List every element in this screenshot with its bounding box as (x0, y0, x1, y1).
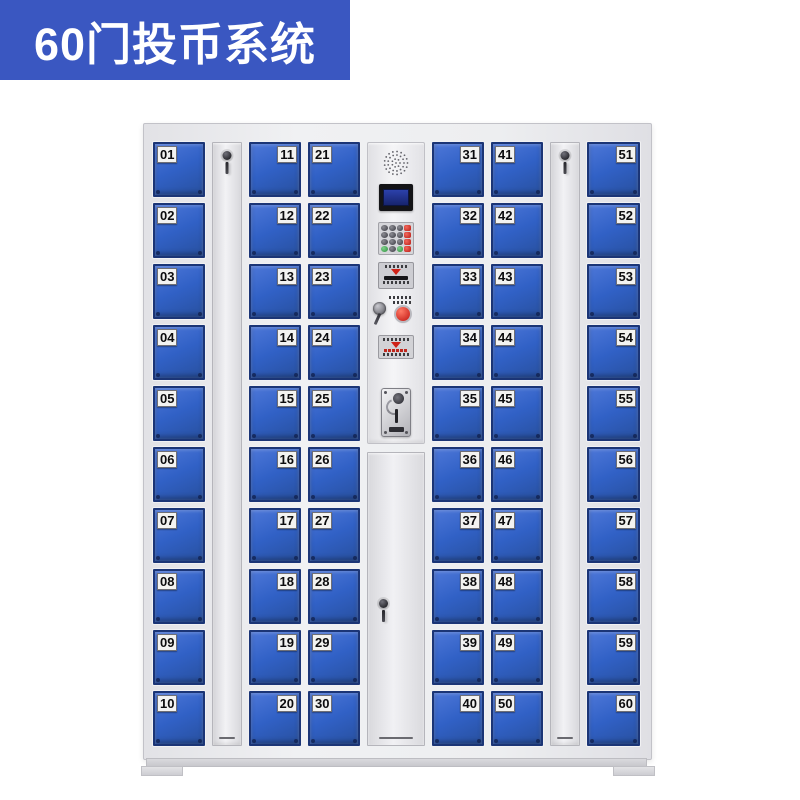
speaker-dot (387, 164, 389, 166)
door-number-label: 16 (277, 451, 297, 468)
locker-door-19: 19 (249, 630, 301, 685)
door-number-label: 38 (460, 573, 480, 590)
locker-door-37: 37 (432, 508, 484, 563)
door-column: 01020304050607080910 (153, 142, 205, 746)
locker-door-12: 12 (249, 203, 301, 258)
master-key-door (550, 142, 580, 746)
cabinet-foot-left (141, 766, 183, 776)
door-number-label: 36 (460, 451, 480, 468)
door-number-label: 06 (157, 451, 177, 468)
door-number-label: 17 (277, 512, 297, 529)
locker-door-13: 13 (249, 264, 301, 319)
locker-door-43: 43 (491, 264, 543, 319)
speaker-dot (385, 156, 387, 158)
instruction-caption (383, 353, 409, 356)
card-reader (378, 262, 414, 289)
door-number-label: 32 (460, 207, 480, 224)
red-push-button (396, 307, 410, 321)
locker-door-50: 50 (491, 691, 543, 746)
door-number-label: 47 (495, 512, 515, 529)
card-reader-text (385, 265, 407, 268)
door-number-label: 11 (277, 146, 297, 163)
locker-door-10: 10 (153, 691, 205, 746)
keypad-key (389, 246, 396, 252)
door-number-label: 10 (157, 695, 177, 712)
door-number-label: 34 (460, 329, 480, 346)
locker-door-02: 02 (153, 203, 205, 258)
keypad-red-key (404, 225, 411, 231)
locker-door-21: 21 (308, 142, 360, 197)
door-number-label: 25 (312, 390, 332, 407)
door-number-label: 28 (312, 573, 332, 590)
screw-icon (405, 391, 408, 394)
locker-door-42: 42 (491, 203, 543, 258)
door-number-label: 12 (277, 207, 297, 224)
door-number-label: 48 (495, 573, 515, 590)
speaker-dot (395, 162, 397, 164)
locker-door-08: 08 (153, 569, 205, 624)
door-number-label: 42 (495, 207, 515, 224)
inserted-key-icon (382, 610, 385, 622)
locker-door-04: 04 (153, 325, 205, 380)
speaker-dot (392, 160, 394, 162)
door-number-label: 53 (616, 268, 636, 285)
locker-door-51: 51 (587, 142, 640, 197)
locker-door-11: 11 (249, 142, 301, 197)
speaker-dot (385, 168, 387, 170)
keypad-red-key (404, 239, 411, 245)
lock-and-button-module (373, 294, 419, 327)
keypad-key (381, 232, 388, 238)
door-number-label: 40 (460, 695, 480, 712)
door-number-label: 05 (157, 390, 177, 407)
locker-door-40: 40 (432, 691, 484, 746)
door-number-label: 50 (495, 695, 515, 712)
door-number-label: 07 (157, 512, 177, 529)
master-door-column (550, 142, 580, 746)
door-number-label: 24 (312, 329, 332, 346)
door-number-label: 58 (616, 573, 636, 590)
cabinet-base-rail (146, 758, 647, 767)
door-number-label: 35 (460, 390, 480, 407)
speaker-dot (384, 160, 386, 162)
locker-door-44: 44 (491, 325, 543, 380)
locker-door-58: 58 (587, 569, 640, 624)
speaker-dot (400, 169, 402, 171)
keypad-key (389, 232, 396, 238)
door-number-label: 59 (616, 634, 636, 651)
locker-door-27: 27 (308, 508, 360, 563)
locker-door-48: 48 (491, 569, 543, 624)
door-number-label: 45 (495, 390, 515, 407)
locker-door-53: 53 (587, 264, 640, 319)
locker-door-33: 33 (432, 264, 484, 319)
locker-door-55: 55 (587, 386, 640, 441)
locker-door-52: 52 (587, 203, 640, 258)
locker-door-03: 03 (153, 264, 205, 319)
speaker-dot (392, 170, 394, 172)
door-number-label: 03 (157, 268, 177, 285)
door-number-label: 18 (277, 573, 297, 590)
door-number-label: 37 (460, 512, 480, 529)
door-column: 31323334353637383940 (432, 142, 484, 746)
instruction-text (383, 338, 409, 341)
locker-door-39: 39 (432, 630, 484, 685)
inserted-key-icon (564, 162, 567, 174)
speaker-dot (403, 162, 405, 164)
locker-door-06: 06 (153, 447, 205, 502)
locker-door-36: 36 (432, 447, 484, 502)
door-number-label: 51 (616, 146, 636, 163)
speaker-dot (394, 158, 396, 160)
speaker-dot (402, 158, 404, 160)
coin-return-slot (389, 427, 404, 432)
card-reader-caption (383, 281, 409, 284)
speaker-dot (400, 156, 402, 158)
locker-door-26: 26 (308, 447, 360, 502)
speaker-dot (402, 166, 404, 168)
speaker-dot (389, 157, 391, 159)
inserted-key-icon (226, 162, 229, 174)
key-lock-icon (223, 151, 232, 174)
speaker-dot (388, 153, 390, 155)
locker-door-57: 57 (587, 508, 640, 563)
cabinet-foot-right (613, 766, 655, 776)
door-number-label: 57 (616, 512, 636, 529)
locker-door-32: 32 (432, 203, 484, 258)
keyhole-icon (561, 151, 570, 160)
locker-door-24: 24 (308, 325, 360, 380)
door-number-label: 21 (312, 146, 332, 163)
door-number-label: 23 (312, 268, 332, 285)
door-number-label: 22 (312, 207, 332, 224)
locker-door-01: 01 (153, 142, 205, 197)
door-column: 41424344454647484950 (491, 142, 543, 746)
door-number-label: 41 (495, 146, 515, 163)
keypad-key (381, 239, 388, 245)
locker-door-59: 59 (587, 630, 640, 685)
locker-door-31: 31 (432, 142, 484, 197)
keypad-key (397, 239, 404, 245)
door-number-label: 27 (312, 512, 332, 529)
door-number-label: 33 (460, 268, 480, 285)
locker-door-54: 54 (587, 325, 640, 380)
keyhole-icon (379, 599, 388, 608)
speaker-dot (396, 151, 398, 153)
speaker-dot (392, 155, 394, 157)
keypad-green-key (381, 246, 388, 252)
instruction-red-text (384, 349, 408, 352)
door-number-label: 56 (616, 451, 636, 468)
speaker-dot (406, 166, 408, 168)
locker-door-45: 45 (491, 386, 543, 441)
screw-icon (384, 431, 387, 434)
locker-door-05: 05 (153, 386, 205, 441)
master-door-column (212, 142, 242, 746)
speaker-dot (399, 162, 401, 164)
speaker-dot (388, 171, 390, 173)
lcd-display (379, 184, 413, 211)
door-number-label: 02 (157, 207, 177, 224)
cabinet-columns: 01020304050607080910 1112131415161718192… (153, 142, 642, 746)
locker-door-41: 41 (491, 142, 543, 197)
speaker-dot (404, 170, 406, 172)
keypad-key (397, 225, 404, 231)
panel-key-icon (374, 313, 382, 325)
speaker-dot (392, 164, 394, 166)
door-number-label: 52 (616, 207, 636, 224)
speaker-dot (406, 158, 408, 160)
screw-icon (405, 431, 408, 434)
door-number-label: 39 (460, 634, 480, 651)
door-number-label: 08 (157, 573, 177, 590)
module-text (393, 301, 411, 304)
speaker-dot (392, 151, 394, 153)
door-number-label: 26 (312, 451, 332, 468)
coin-slot (395, 409, 398, 423)
door-number-label: 01 (157, 146, 177, 163)
screw-icon (384, 391, 387, 394)
speaker-dot (400, 172, 402, 174)
speaker-dot (394, 166, 396, 168)
door-number-label: 55 (616, 390, 636, 407)
speaker-dot (396, 154, 398, 156)
locker-door-20: 20 (249, 691, 301, 746)
control-column (367, 142, 425, 746)
keypad-key (389, 225, 396, 231)
door-column: 21222324252627282930 (308, 142, 360, 746)
locker-door-60: 60 (587, 691, 640, 746)
locker-door-25: 25 (308, 386, 360, 441)
speaker-dot (396, 174, 398, 176)
door-number-label: 49 (495, 634, 515, 651)
door-bottom-vent (379, 737, 413, 739)
coin-acceptor (381, 388, 411, 437)
keypad-red-key (404, 246, 411, 252)
lcd-screen (383, 189, 409, 206)
locker-door-15: 15 (249, 386, 301, 441)
locker-door-18: 18 (249, 569, 301, 624)
door-column: 51525354555657585960 (587, 142, 640, 746)
door-number-label: 43 (495, 268, 515, 285)
door-number-label: 09 (157, 634, 177, 651)
speaker-grille-icon (383, 150, 409, 176)
keypad-key (381, 225, 388, 231)
door-bottom-vent (557, 737, 574, 739)
key-lock-icon (561, 151, 570, 174)
locker-door-35: 35 (432, 386, 484, 441)
door-number-label: 14 (277, 329, 297, 346)
speaker-dot (398, 159, 400, 161)
locker-door-07: 07 (153, 508, 205, 563)
keypad-key (397, 232, 404, 238)
locker-door-30: 30 (308, 691, 360, 746)
locker-door-28: 28 (308, 569, 360, 624)
speaker-dot (396, 170, 398, 172)
speaker-dot (407, 162, 409, 164)
door-number-label: 20 (277, 695, 297, 712)
control-panel (367, 142, 425, 444)
speaker-dot (400, 152, 402, 154)
door-number-label: 04 (157, 329, 177, 346)
speaker-dot (392, 173, 394, 175)
keypad-key (389, 239, 396, 245)
locker-door-56: 56 (587, 447, 640, 502)
locker-door-14: 14 (249, 325, 301, 380)
service-door (367, 452, 425, 746)
door-number-label: 13 (277, 268, 297, 285)
locker-door-47: 47 (491, 508, 543, 563)
door-number-label: 30 (312, 695, 332, 712)
keypad-green-key (397, 246, 404, 252)
master-key-door (212, 142, 242, 746)
key-lock-icon (379, 599, 388, 622)
module-text (389, 296, 413, 299)
promo-badge-text: 60门投币系统 (34, 8, 316, 73)
locker-door-34: 34 (432, 325, 484, 380)
door-number-label: 31 (460, 146, 480, 163)
locker-cabinet: 01020304050607080910 1112131415161718192… (143, 123, 652, 760)
keypad (378, 222, 414, 255)
promo-badge: 60门投币系统 (0, 0, 350, 80)
instruction-label (378, 335, 414, 359)
instruction-arrow-icon (391, 342, 401, 348)
locker-door-22: 22 (308, 203, 360, 258)
door-number-label: 60 (616, 695, 636, 712)
speaker-dot (398, 165, 400, 167)
locker-door-09: 09 (153, 630, 205, 685)
locker-door-29: 29 (308, 630, 360, 685)
locker-door-16: 16 (249, 447, 301, 502)
keypad-red-key (404, 232, 411, 238)
locker-door-17: 17 (249, 508, 301, 563)
locker-door-23: 23 (308, 264, 360, 319)
speaker-dot (384, 164, 386, 166)
locker-door-46: 46 (491, 447, 543, 502)
door-number-label: 19 (277, 634, 297, 651)
locker-door-38: 38 (432, 569, 484, 624)
locker-door-49: 49 (491, 630, 543, 685)
keyhole-icon (223, 151, 232, 160)
door-number-label: 15 (277, 390, 297, 407)
speaker-dot (404, 154, 406, 156)
door-column: 11121314151617181920 (249, 142, 301, 746)
door-number-label: 44 (495, 329, 515, 346)
door-bottom-vent (219, 737, 236, 739)
insert-arrow-icon (391, 269, 401, 275)
door-number-label: 46 (495, 451, 515, 468)
door-number-label: 29 (312, 634, 332, 651)
door-number-label: 54 (616, 329, 636, 346)
speaker-dot (387, 160, 389, 162)
card-slot (384, 276, 408, 280)
speaker-dot (389, 167, 391, 169)
